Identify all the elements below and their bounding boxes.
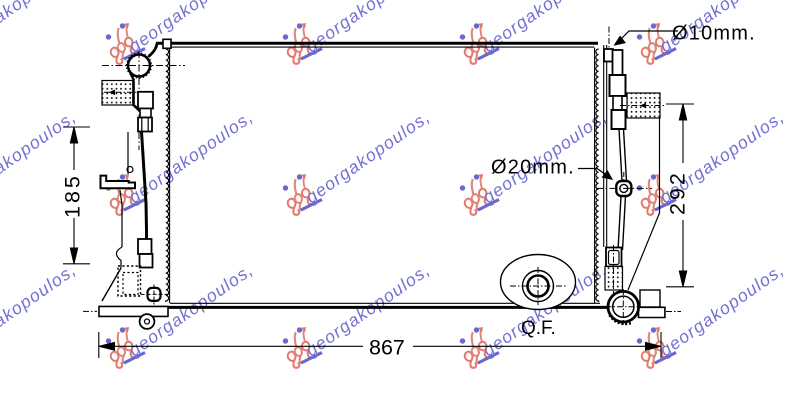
svg-text:Ø10mm.: Ø10mm. — [672, 23, 756, 45]
svg-text:Q.F.: Q.F. — [521, 318, 556, 339]
svg-text:185: 185 — [61, 173, 85, 218]
svg-text:867: 867 — [369, 336, 405, 360]
svg-text:Ø20mm.: Ø20mm. — [491, 157, 575, 179]
svg-text:292: 292 — [666, 170, 690, 215]
